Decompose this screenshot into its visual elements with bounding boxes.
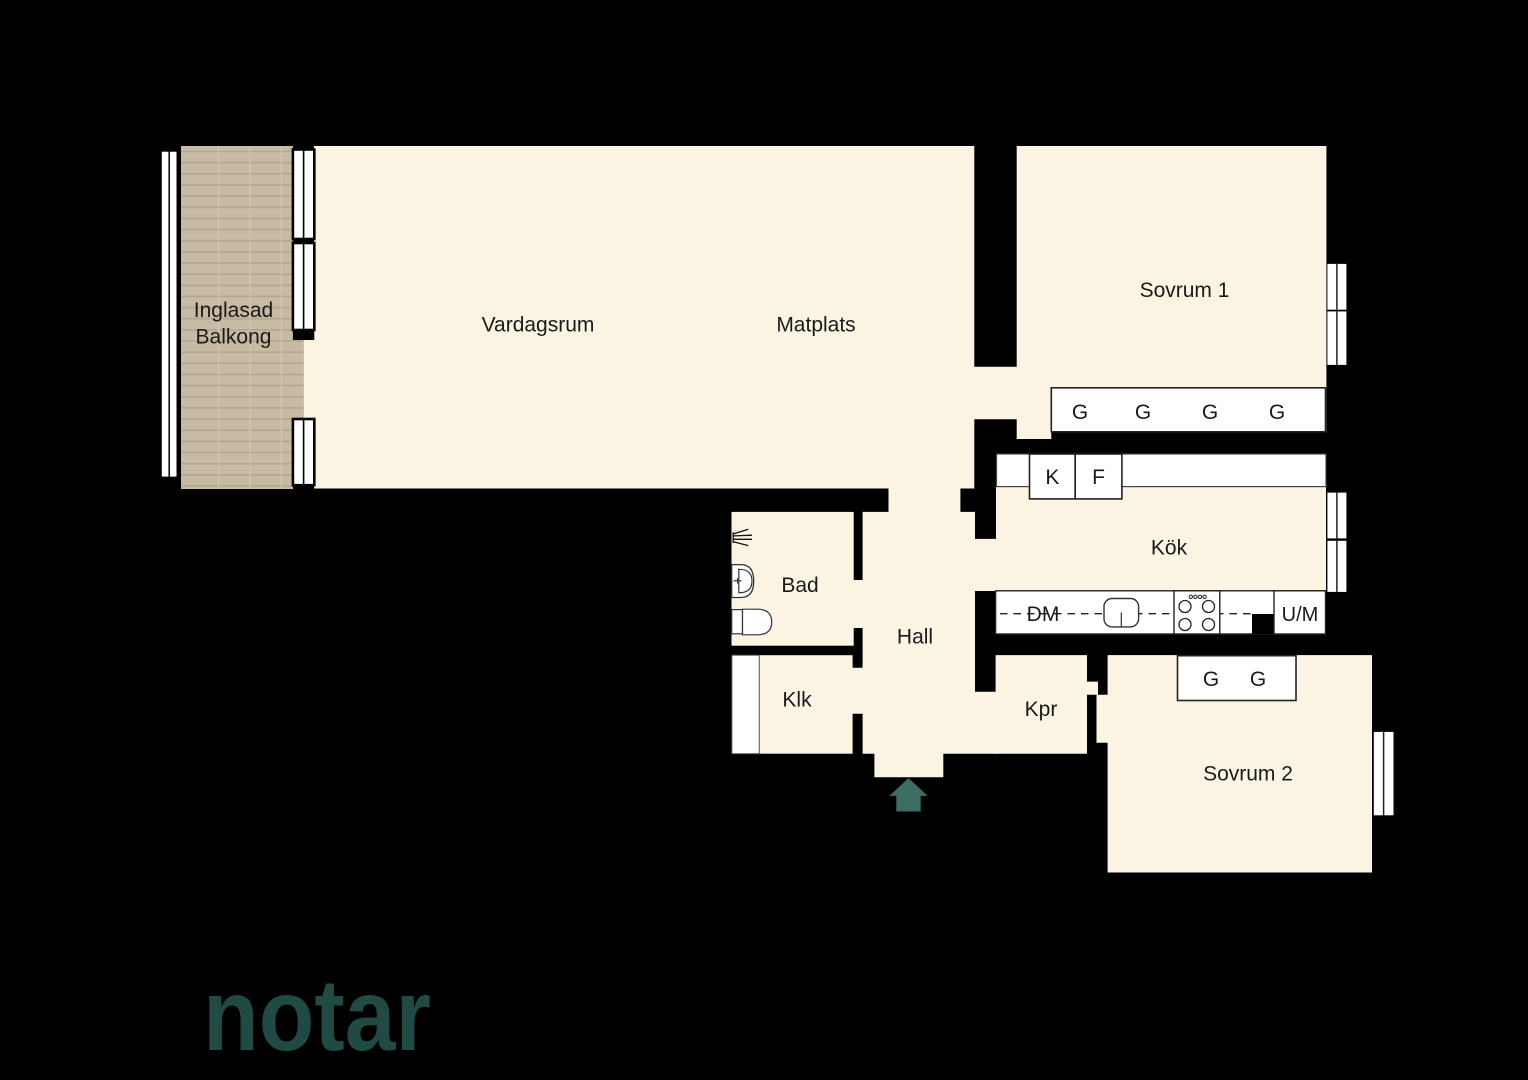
svg-text:G: G [1135, 401, 1151, 424]
svg-text:G: G [1072, 401, 1088, 424]
svg-text:G: G [1202, 401, 1218, 424]
svg-text:Inglasad: Inglasad [194, 299, 273, 322]
svg-text:U/M: U/M [1282, 604, 1319, 626]
svg-text:Matplats: Matplats [776, 314, 855, 337]
svg-text:K: K [1045, 466, 1059, 489]
svg-text:Kpr: Kpr [1025, 698, 1058, 721]
svg-text:G: G [1269, 401, 1285, 424]
svg-text:Hall: Hall [897, 626, 933, 649]
svg-text:G: G [1203, 668, 1219, 691]
svg-text:Kök: Kök [1151, 537, 1188, 560]
svg-text:Vardagsrum: Vardagsrum [482, 314, 595, 337]
svg-text:Klk: Klk [782, 689, 812, 712]
svg-text:Sovrum 2: Sovrum 2 [1203, 763, 1293, 786]
svg-text:Bad: Bad [781, 574, 818, 597]
svg-text:F: F [1092, 466, 1105, 489]
svg-text:DM: DM [1027, 603, 1060, 626]
svg-text:Balkong: Balkong [196, 326, 272, 349]
svg-text:notar: notar [203, 958, 431, 1072]
svg-text:G: G [1250, 668, 1266, 691]
svg-text:Sovrum 1: Sovrum 1 [1140, 279, 1230, 302]
